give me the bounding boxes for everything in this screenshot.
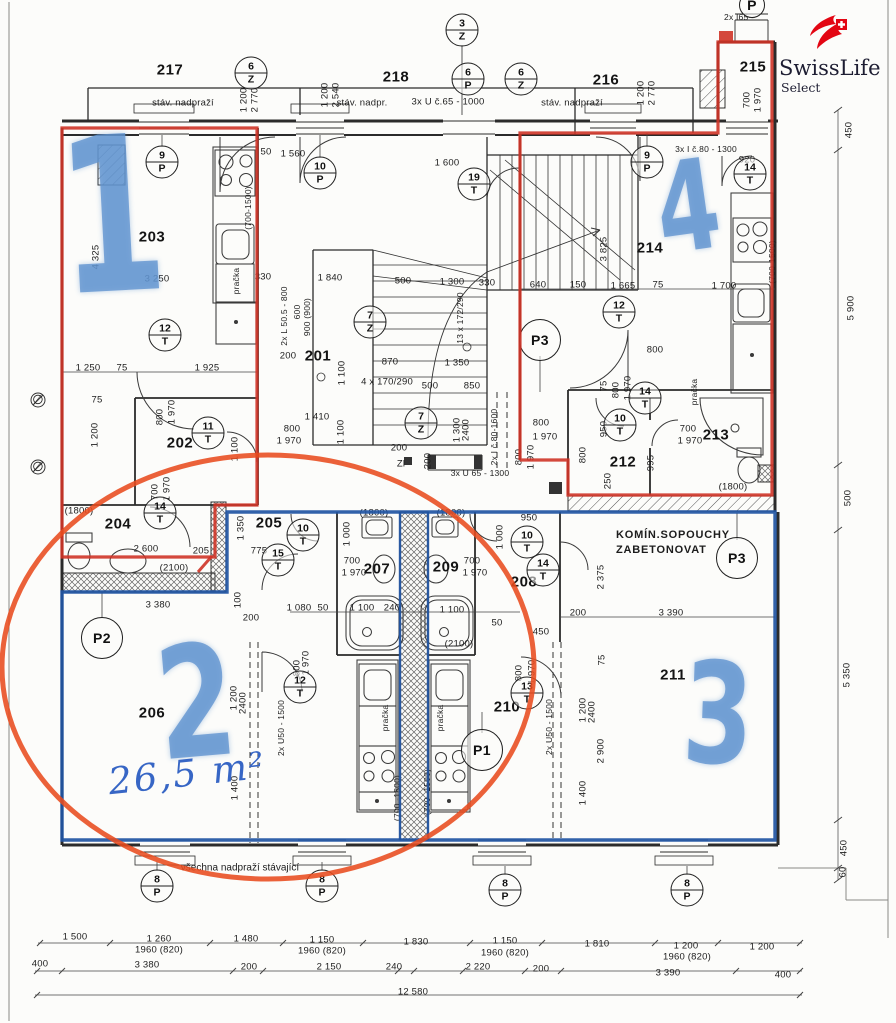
dimension-label: 1 100 [230,437,241,462]
marker-text: 12 [285,675,316,687]
dimension-label: 1 200 [320,83,331,108]
dimension-label: 200 [391,443,407,454]
dimension-label: (2100) [445,639,474,650]
marker-text: 6 [506,67,537,79]
dimension-label: 2 600 [134,544,159,555]
plan-marker-circle: 14T [144,497,177,530]
dimension-label: 1 100 [350,603,375,614]
room-number: 212 [610,454,637,471]
marker-text: T [459,184,490,197]
marker-text: T [285,687,316,700]
plan-marker-circle: 8P [489,874,522,907]
dimension-label: 1 560 [281,149,306,160]
marker-text: 11 [193,421,224,433]
plan-marker-circle: 11T [192,417,225,450]
dimension-label: 850 [464,381,480,392]
dimension-label: 800 [611,382,622,398]
dimension-label: pračka [435,705,445,732]
dimension-label: 1 150 [493,936,518,947]
marker-text: 8 [307,874,338,886]
plan-marker-circle: 10T [604,409,637,442]
dimension-label: 450 [839,840,850,856]
dimension-label: (700 -1500) [392,775,402,821]
marker-text: 8 [490,878,521,890]
swisslife-logo: SwissLife Select [779,14,894,95]
plan-marker-circle: 6Z [235,57,268,90]
dimension-label: 3 380 [146,600,171,611]
marker-text: T [630,398,661,411]
dimension-label: 3 825 [599,237,610,262]
marker-text: T [735,174,766,187]
marker-text: T [512,542,543,555]
dimension-label: 75 [117,363,128,374]
dimension-label: 2 150 [317,962,342,973]
dimension-label: 1 600 [435,158,460,169]
dimension-label: 600 [292,305,302,320]
dimension-label: (1800) [65,506,94,517]
plan-marker-circle: 12T [603,296,636,329]
marker-text: 14 [145,501,176,513]
marker-text: P [307,886,338,899]
plan-marker-circle: 7Z [405,407,438,440]
dimension-label: 1 200 [90,423,101,448]
dimension-label: 200 [423,453,434,469]
dimension-label: 1960 (820) [663,952,711,963]
dimension-label: 5 350 [842,663,853,688]
dimension-label: 1 970 [277,436,302,447]
marker-text: Z [236,73,267,86]
chimney-note-line1: KOMÍN.SOPOUCHY [616,528,730,543]
marker-text: T [512,693,543,706]
plan-marker-circle: 8P [671,874,704,907]
room-number: 215 [740,59,767,76]
dimension-label: 900 (900) [302,298,312,336]
dimension-label: (700-1500) [767,240,777,284]
marker-text: P [453,79,484,92]
dimension-label: 1 250 [76,363,101,374]
dimension-label: 2 770 [647,81,658,106]
dimension-label: 1 970 [533,432,558,443]
marker-text: Z [506,79,537,92]
dimension-label: 1 080 [287,603,312,614]
dimension-label: 3x U č.65 - 1000 [412,97,485,108]
dimension-label: 1 840 [318,273,343,284]
dimension-label: 1 665 [611,281,636,292]
dimension-label: Zl [397,459,405,470]
dimension-label: 50 [318,603,329,614]
marker-text: 7 [355,310,386,322]
dimension-label: 700 [680,424,696,435]
dimension-label: 1 200 [750,942,775,953]
dimension-label: 400 [775,970,791,981]
dimension-label: 3x U 65 - 1300 [451,468,510,478]
room-number: 216 [593,72,620,89]
dimension-label: 1 700 [712,281,737,292]
dimension-label: 1 400 [578,781,589,806]
dimension-label: 1 150 [310,935,335,946]
marker-text: T [145,513,176,526]
plan-marker-circle: 14T [629,382,662,415]
plan-marker-circle: 14T [734,158,767,191]
dimension-label: 800 [284,424,300,435]
marker-text: T [193,433,224,446]
plan-marker-circle: 7Z [354,306,387,339]
labels-layer: stáv. nadpraží1 2002 7701 2002 540stáv. … [0,0,896,1023]
dimension-label: 800 [647,345,663,356]
plan-marker-circle: 10P [304,157,337,190]
dimension-label: 800 [514,449,525,465]
plan-marker-circle: 8P [141,870,174,903]
dimension-label: (1800) [437,508,466,519]
room-number: 211 [660,667,686,684]
marker-text: 10 [305,161,336,173]
dimension-label: 1 480 [234,934,259,945]
dimension-label: 1 970 [753,88,764,113]
chimney-note-line2: ZABETONOVAT [616,543,730,558]
dimension-label: 1 830 [404,937,429,948]
dimension-label: 1 500 [63,932,88,943]
plan-marker-circle: P1 [461,729,503,771]
marker-text: 12 [604,300,635,312]
dimension-label: 240 [384,603,400,614]
dimension-label: 75 [597,655,608,666]
dimension-label: 200 [280,351,296,362]
dimension-label: 2400 [461,419,472,441]
dimension-label: stáv. nadpraží [541,98,603,109]
dimension-label: 75 [92,395,103,406]
dimension-label: 2x U50 - 1500 [544,699,554,755]
marker-text: 14 [735,162,766,174]
dimension-label: 2 375 [596,565,607,590]
dimension-label: 500 [395,276,411,287]
marker-text: T [288,535,319,548]
dimension-label: 1 970 [526,445,537,470]
dimension-label: 500 [843,490,854,506]
marker-text: 13 [512,681,543,693]
logo-title: SwissLife [779,56,894,80]
marker-text: P [672,890,703,903]
plan-marker-circle: 14T [527,554,560,587]
dimension-label: 995 [646,455,657,471]
room-number: 204 [105,516,132,533]
marker-text: 3 [447,18,478,30]
dimension-label: 1 970 [463,568,488,579]
dimension-label: 1 000 [495,525,506,550]
dimension-label: 2 770 [250,88,261,113]
dimension-label: 205 [193,546,209,557]
dimension-label: 200 [570,608,586,619]
dimension-label: 12 580 [398,987,428,998]
lintels-note: všechna nadpraží stávající [181,863,299,874]
marker-text: 6 [453,67,484,79]
dimension-label: 2 220 [466,962,491,973]
room-number: 213 [703,427,730,444]
dimension-label: pračka [380,705,390,732]
dimension-label: 1 970 [342,568,367,579]
dimension-label: 1 350 [445,358,470,369]
dimension-label: 950 [521,513,537,524]
dimension-label: 1 410 [305,412,330,423]
marker-text: 15 [263,548,294,560]
dimension-label: 800 [155,409,166,425]
marker-text: P [490,890,521,903]
dimension-label: 1 970 [678,436,703,447]
dimension-label: ∅ [32,392,44,408]
dimension-label: 2x I č.80-1600 [489,409,499,466]
logo-subtitle: Select [781,80,894,95]
dimension-label: 200 [243,613,259,624]
dimension-label: 800 [533,418,549,429]
dimension-label: 1 200 [674,941,699,952]
dimension-label: 3 380 [135,960,160,971]
dimension-label: 700 [344,556,360,567]
dimension-label: 2400 [587,701,598,723]
marker-text: 14 [528,558,559,570]
dimension-label: 240 [386,962,402,973]
marker-text: 19 [459,172,490,184]
dimension-label: 200 [533,964,549,975]
dimension-label: 1960 (820) [481,948,529,959]
dimension-label: 4 x 170/290 [361,377,413,388]
marker-text: 10 [605,413,636,425]
marker-text: T [604,312,635,325]
marker-text: T [605,425,636,438]
dimension-label: 1 200 [636,81,647,106]
dimension-label: 700 [742,92,753,108]
marker-text: 8 [672,878,703,890]
dimension-label: 1 100 [440,605,465,616]
dimension-label: 1 260 [147,934,172,945]
plan-marker-circle: 19T [458,168,491,201]
dimension-label: 1960 (820) [135,945,183,956]
plan-marker-circle: 13T [511,677,544,710]
dimension-label: 700 [464,556,480,567]
apartment-number-mark: 1 [53,117,171,316]
dimension-label: (700-1500) [243,186,253,230]
chimney-note: KOMÍN.SOPOUCHY ZABETONOVAT [616,528,730,559]
dimension-label: 800 [578,447,589,463]
dimension-label: 13 x 172/290 [455,292,465,344]
dimension-label: 2 900 [596,739,607,764]
dimension-label: ∅ [32,459,44,475]
marker-text: 7 [406,411,437,423]
plan-marker-circle: 6Z [505,63,538,96]
marker-text: 6 [236,61,267,73]
dimension-label: 1 810 [585,939,610,950]
dimension-label: pračka [231,268,241,295]
room-number: 202 [167,435,194,452]
marker-text: 10 [512,530,543,542]
dimension-label: 2x U50 - 1500 [276,700,286,756]
marker-text: 10 [288,523,319,535]
dimension-label: (2100) [160,563,189,574]
dimension-label: 450 [844,122,855,138]
floorplan-page: stáv. nadpraží1 2002 7701 2002 540stáv. … [0,0,896,1023]
plan-marker-circle: 3Z [446,14,479,47]
dimension-label: 1 925 [195,363,220,374]
marker-text: P [305,173,336,186]
marker-text: Z [447,30,478,43]
dimension-label: 1 200 [239,88,250,113]
room-number: 207 [364,561,391,578]
dimension-label: 450 [533,627,549,638]
apartment-number-mark: 3 [681,652,755,780]
dimension-label: (700 -1500) [422,769,432,815]
marker-text: 8 [142,874,173,886]
marker-text: T [528,570,559,583]
dimension-label: 2400 [238,692,249,714]
plan-marker-circle: P3 [519,319,561,361]
room-number: 209 [433,559,460,576]
dimension-label: 60 [838,867,849,878]
dimension-label: 75 [599,381,610,392]
dimension-label: 100 [233,592,244,608]
dimension-label: 1 100 [337,361,348,386]
plan-marker-circle: P2 [81,617,123,659]
dimension-label: 1 970 [167,400,178,425]
dimension-label: (1800) [360,508,389,519]
room-number: 214 [637,240,664,257]
dimension-label: 2x L 50.5 - 800 [279,286,289,345]
dimension-label: 250 [603,473,614,489]
room-number: 205 [256,515,283,532]
dimension-label: 1 350 [236,516,247,541]
dimension-label: 640 [530,280,546,291]
plan-marker-circle: 6P [452,63,485,96]
swisslife-flame-icon [805,14,851,56]
dimension-label: 1 300 [440,277,465,288]
marker-text: P [142,886,173,899]
marker-text: Z [355,322,386,335]
dimension-label: 330 [255,272,271,283]
dimension-label: 75 [653,280,664,291]
dimension-label: 330 [479,278,495,289]
dimension-label: 3 390 [659,608,684,619]
room-number: 217 [157,62,184,79]
dimension-label: 400 [32,959,48,970]
dimension-label: stáv. nadpraží [152,98,214,109]
dimension-label: pračka [689,379,699,406]
dimension-label: stáv. nadpr. [337,98,388,109]
dimension-label: 1 000 [342,522,353,547]
plan-marker-circle: 15T [262,544,295,577]
marker-text: T [263,560,294,573]
dimension-label: 150 [570,280,586,291]
dimension-label: 1 100 [336,420,347,445]
room-number: 201 [305,348,332,365]
marker-text: Z [406,423,437,436]
dimension-label: 1960 (820) [298,946,346,957]
dimension-label: 50 [261,147,272,158]
dimension-label: 5 900 [846,296,857,321]
plan-marker-circle: 12T [284,671,317,704]
room-number: 218 [383,69,410,86]
dimension-label: 3 390 [656,968,681,979]
dimension-label: 200 [241,962,257,973]
dimension-label: 500 [422,381,438,392]
plan-marker-circle: 8P [306,870,339,903]
dimension-label: 50 [492,618,503,629]
dimension-label: (1800) [719,482,748,493]
dimension-label: 870 [382,357,398,368]
marker-text: 14 [630,386,661,398]
plan-marker-circle: 10T [287,519,320,552]
